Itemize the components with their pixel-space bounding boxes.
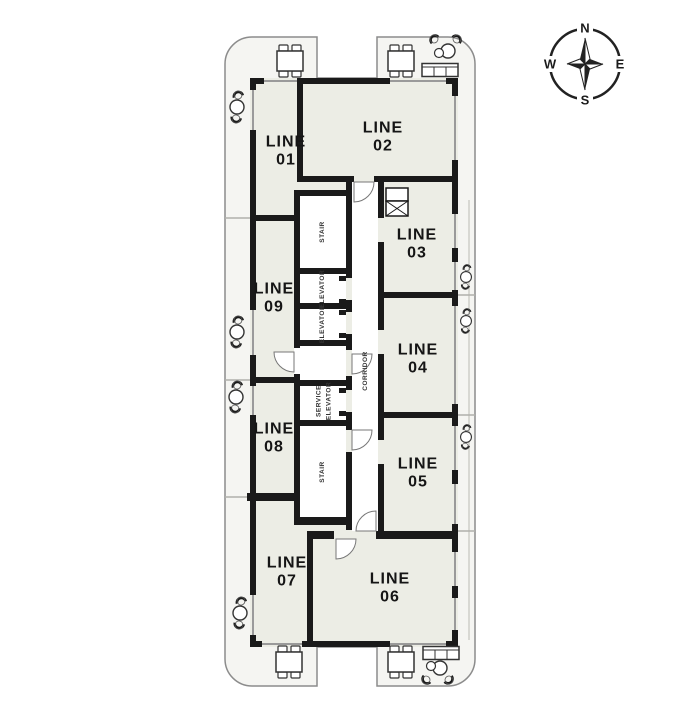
sofa-icon (422, 64, 458, 77)
elevator-2-label: ELEVATOR (318, 305, 328, 343)
service-elevator-label: SERVICE ELEVATOR (314, 382, 334, 420)
floor-plan-page: LINE 01 LINE 02 LINE 03 LINE 04 LINE 05 … (0, 0, 700, 721)
stair-bottom-label: STAIR (318, 461, 328, 483)
compass-east-label: E (615, 58, 626, 71)
compass-north-label: N (579, 22, 590, 35)
unit-label-line-02: LINE 02 (363, 120, 403, 157)
lobby-floor (294, 348, 300, 374)
unit-label-line-05: LINE 05 (398, 456, 438, 493)
corridor-label: CORRIDOR (361, 351, 371, 390)
floor-plan-canvas (0, 0, 700, 721)
shaft-x-icon (386, 188, 408, 216)
elevator-1-label: ELEVATOR (318, 270, 328, 308)
unit-label-line-08: LINE 08 (254, 421, 294, 458)
compass-south-label: S (580, 94, 591, 107)
unit-label-line-09: LINE 09 (254, 281, 294, 318)
unit-label-line-06: LINE 06 (370, 571, 410, 608)
unit-label-line-03: LINE 03 (397, 227, 437, 264)
unit-label-line-01: LINE 01 (266, 134, 306, 171)
unit-label-line-07: LINE 07 (267, 555, 307, 592)
stair-top-label: STAIR (318, 221, 328, 243)
sofa-icon (423, 647, 459, 660)
unit-label-line-04: LINE 04 (398, 342, 438, 379)
compass-west-label: W (543, 58, 557, 71)
